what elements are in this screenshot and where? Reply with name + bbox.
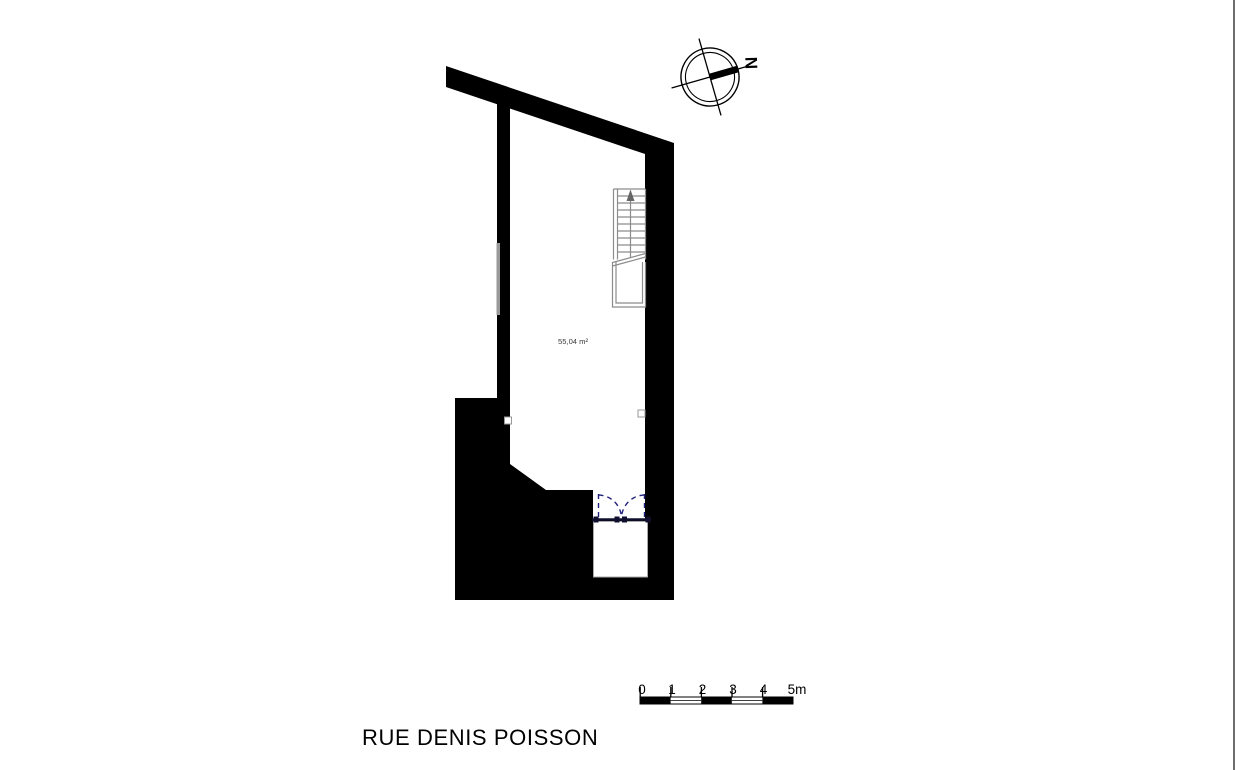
door-swing-left: [599, 495, 622, 518]
left-wall-window: [497, 243, 501, 315]
scale-label-3: 3: [729, 682, 737, 697]
wall-marker-right: [638, 410, 645, 417]
scale-bar-ticks: [640, 687, 762, 697]
floor-plan-drawing: N: [0, 0, 1235, 770]
wall-top-diagonal: [446, 66, 674, 160]
scale-bar-labels: 0 1 2 3 4 5m: [638, 682, 806, 697]
street-name-label: RUE DENIS POISSON: [362, 725, 598, 751]
scale-label-1: 1: [668, 682, 676, 697]
scale-label-2: 2: [699, 682, 707, 697]
north-letter: N: [741, 56, 760, 69]
scale-bar: 0 1 2 3 4 5m: [638, 682, 806, 704]
entry-recess: [594, 522, 648, 578]
staircase: [613, 189, 646, 307]
scale-label-0: 0: [638, 682, 646, 697]
entry-door: [592, 494, 651, 523]
scale-label-4: 4: [760, 682, 768, 697]
room-area-label: 55,04 m²: [558, 337, 588, 346]
floor-plan-page: N: [0, 0, 1235, 770]
wall-right: [645, 143, 674, 600]
north-arrow-icon: N: [661, 28, 761, 127]
stair-arrow-head: [627, 190, 635, 202]
door-swing-right: [622, 495, 645, 518]
scale-label-5m: 5m: [788, 682, 807, 697]
scale-bar-black-segments: [640, 697, 793, 704]
wall-marker-left: [505, 417, 512, 424]
